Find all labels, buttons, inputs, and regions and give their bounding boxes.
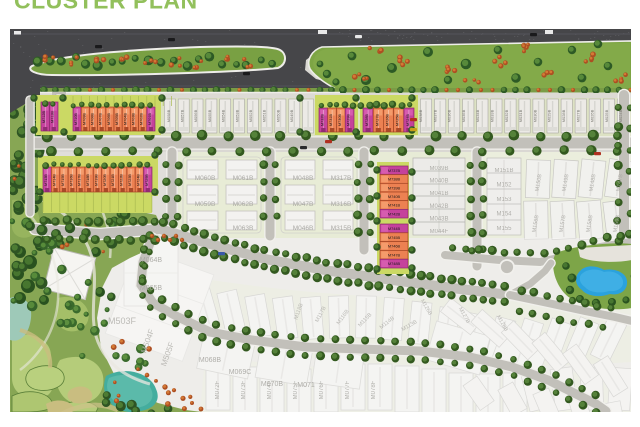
svg-text:M151B: M151B [494,168,513,174]
svg-text:M748B: M748B [388,261,401,266]
svg-text:M729B: M729B [347,114,351,126]
svg-text:M714B: M714B [53,174,57,186]
svg-text:M055B: M055B [207,109,212,122]
svg-text:M064B: M064B [140,257,163,264]
svg-text:M049B: M049B [289,109,294,122]
svg-text:M720B: M720B [103,174,107,186]
svg-text:M742B: M742B [388,211,401,216]
svg-text:M068B: M068B [199,357,222,364]
svg-text:M052B: M052B [248,109,253,122]
svg-text:M152: M152 [496,183,512,189]
svg-text:M038B: M038B [418,109,423,122]
svg-text:M037B: M037B [432,109,437,122]
svg-text:M315B: M315B [331,225,352,232]
svg-text:M709B: M709B [82,113,86,125]
svg-text:M727B: M727B [375,114,379,126]
svg-text:M062B: M062B [233,201,254,208]
svg-text:M065B: M065B [140,285,163,292]
svg-text:M739B: M739B [388,185,401,190]
svg-text:M069C: M069C [229,369,252,376]
svg-text:M071: M071 [297,382,315,389]
svg-text:M043B: M043B [429,216,448,222]
svg-text:M718B: M718B [86,174,90,186]
svg-text:M713B: M713B [44,174,48,186]
svg-text:M746B: M746B [388,244,401,249]
svg-text:M026B: M026B [590,109,595,122]
svg-text:M063B: M063B [233,225,254,232]
svg-text:M747B: M747B [388,252,401,257]
svg-text:M077F: M077F [345,380,351,399]
svg-text:M024B: M024B [618,109,623,122]
svg-text:M058B: M058B [166,109,171,122]
svg-text:M737B: M737B [388,168,401,173]
svg-text:M702B: M702B [140,113,144,125]
svg-text:M051B: M051B [262,109,267,122]
svg-text:M717B: M717B [78,174,82,186]
svg-text:M050B: M050B [275,109,280,122]
svg-text:M725B: M725B [145,174,149,186]
svg-text:M708B: M708B [91,113,95,125]
svg-text:M059B: M059B [195,201,216,208]
svg-text:M738B: M738B [388,177,401,182]
svg-text:M155: M155 [496,226,512,232]
svg-text:M728B: M728B [365,114,369,126]
svg-text:M153: M153 [496,197,512,203]
svg-text:M076F: M076F [319,380,325,399]
svg-text:M731B: M731B [329,114,333,126]
svg-text:M710B: M710B [74,113,78,125]
svg-text:M034B: M034B [475,109,480,122]
svg-text:M046B: M046B [293,225,314,232]
svg-text:M715B: M715B [61,174,65,186]
svg-text:M732B: M732B [320,114,324,126]
svg-text:M061B: M061B [233,175,254,182]
svg-text:M721B: M721B [111,174,115,186]
svg-text:M704B: M704B [123,113,127,125]
svg-text:M719B: M719B [94,174,98,186]
svg-text:M048B: M048B [293,175,314,182]
svg-text:M029B: M029B [547,109,552,122]
svg-text:M033B: M033B [490,109,495,122]
svg-text:M044F: M044F [430,229,449,235]
svg-text:M316B: M316B [331,201,352,208]
svg-text:M707B: M707B [99,113,103,125]
svg-text:M074F: M074F [267,380,273,399]
svg-text:M028B: M028B [561,109,566,122]
svg-text:M035B: M035B [461,109,466,122]
svg-text:M726B: M726B [386,114,390,126]
svg-text:M054B: M054B [221,109,226,122]
svg-text:M053B: M053B [234,109,239,122]
svg-text:M040B: M040B [429,179,448,185]
svg-text:M031B: M031B [518,109,523,122]
svg-text:M724B: M724B [136,174,140,186]
svg-text:M057B: M057B [180,109,185,122]
svg-text:M741B: M741B [388,203,401,208]
svg-text:M036B: M036B [447,109,452,122]
svg-text:M503F: M503F [108,316,137,326]
svg-text:M722B: M722B [120,174,124,186]
svg-text:M060B: M060B [195,175,216,182]
svg-text:M030B: M030B [532,109,537,122]
svg-text:M075F: M075F [293,380,299,399]
svg-text:M723B: M723B [128,174,132,186]
svg-text:M730B: M730B [338,114,342,126]
svg-text:M027B: M027B [575,109,580,122]
svg-text:M745B: M745B [388,235,401,240]
svg-text:M072F: M072F [215,380,221,399]
svg-text:M701B: M701B [148,113,152,125]
svg-text:M042B: M042B [429,204,448,210]
svg-text:M039B: M039B [429,166,448,172]
svg-text:M056B: M056B [193,109,198,122]
svg-text:M154: M154 [496,212,512,218]
svg-text:M724B: M724B [406,114,410,126]
svg-text:M712B: M712B [42,111,46,123]
svg-text:M041B: M041B [429,191,448,197]
svg-text:M740B: M740B [388,194,401,199]
svg-text:M706B: M706B [107,113,111,125]
svg-text:M703B: M703B [132,113,136,125]
svg-text:M711B: M711B [51,111,55,123]
svg-text:CLUSTER PLAN: CLUSTER PLAN [14,0,198,14]
svg-text:M744B: M744B [388,226,401,231]
svg-text:M317B: M317B [331,175,352,182]
svg-text:M078F: M078F [371,380,377,399]
svg-text:M073F: M073F [241,380,247,399]
svg-text:M725B: M725B [396,114,400,126]
svg-text:M705B: M705B [115,113,119,125]
svg-text:M032B: M032B [504,109,509,122]
svg-text:M047B: M047B [293,201,314,208]
svg-text:M716B: M716B [69,174,73,186]
svg-text:M025B: M025B [604,109,609,122]
